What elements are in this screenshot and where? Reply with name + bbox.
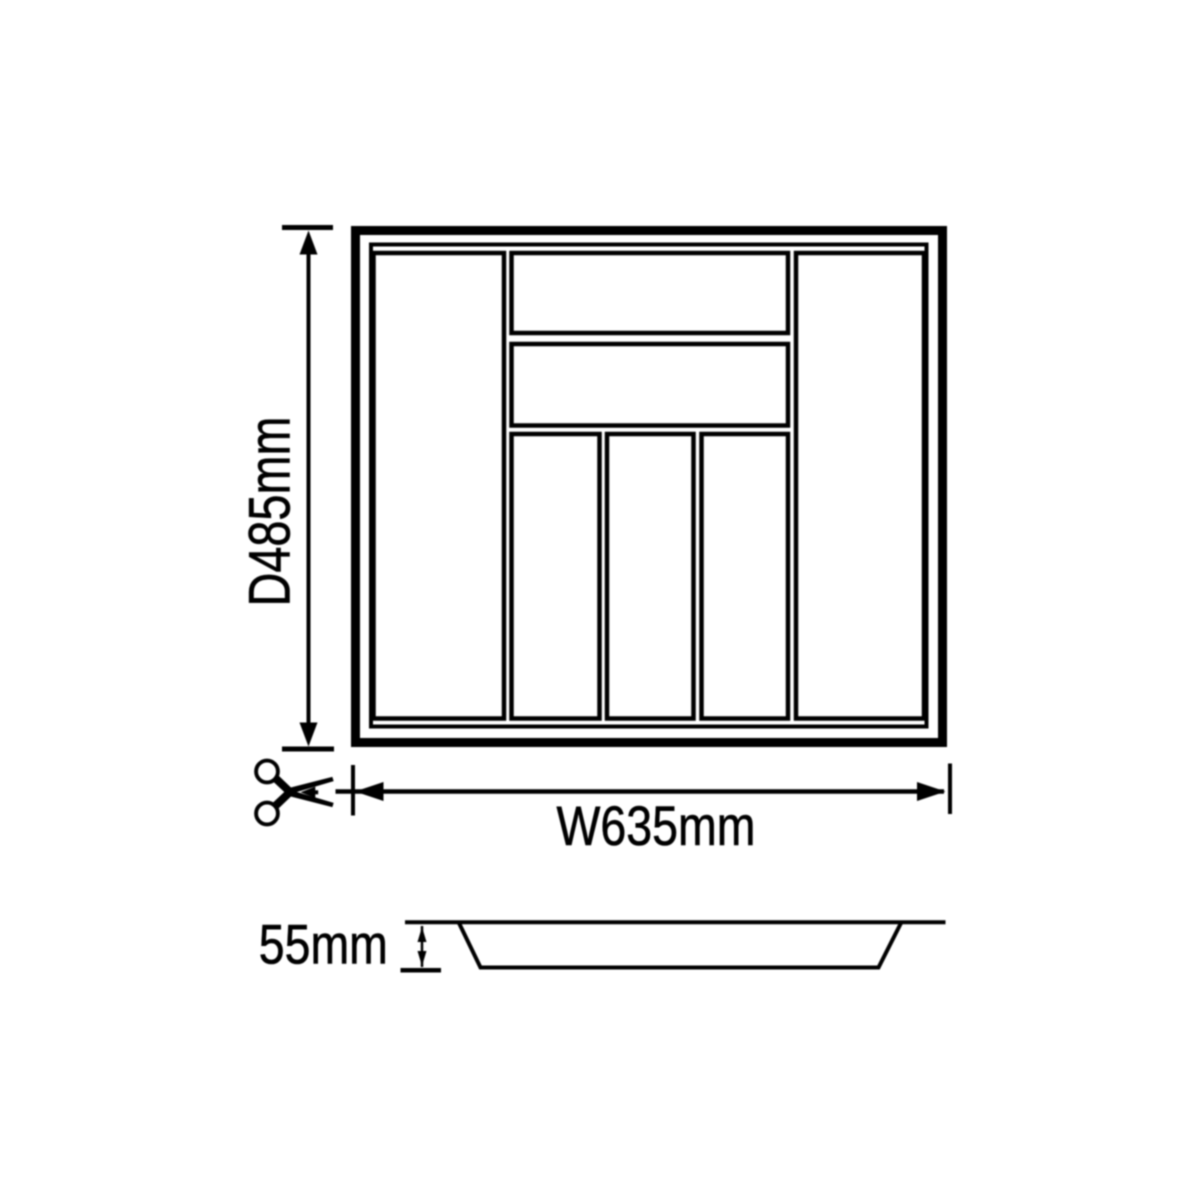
svg-text:D485mm: D485mm (238, 417, 303, 607)
svg-text:55mm: 55mm (259, 914, 388, 976)
svg-text:W635mm: W635mm (557, 795, 756, 857)
